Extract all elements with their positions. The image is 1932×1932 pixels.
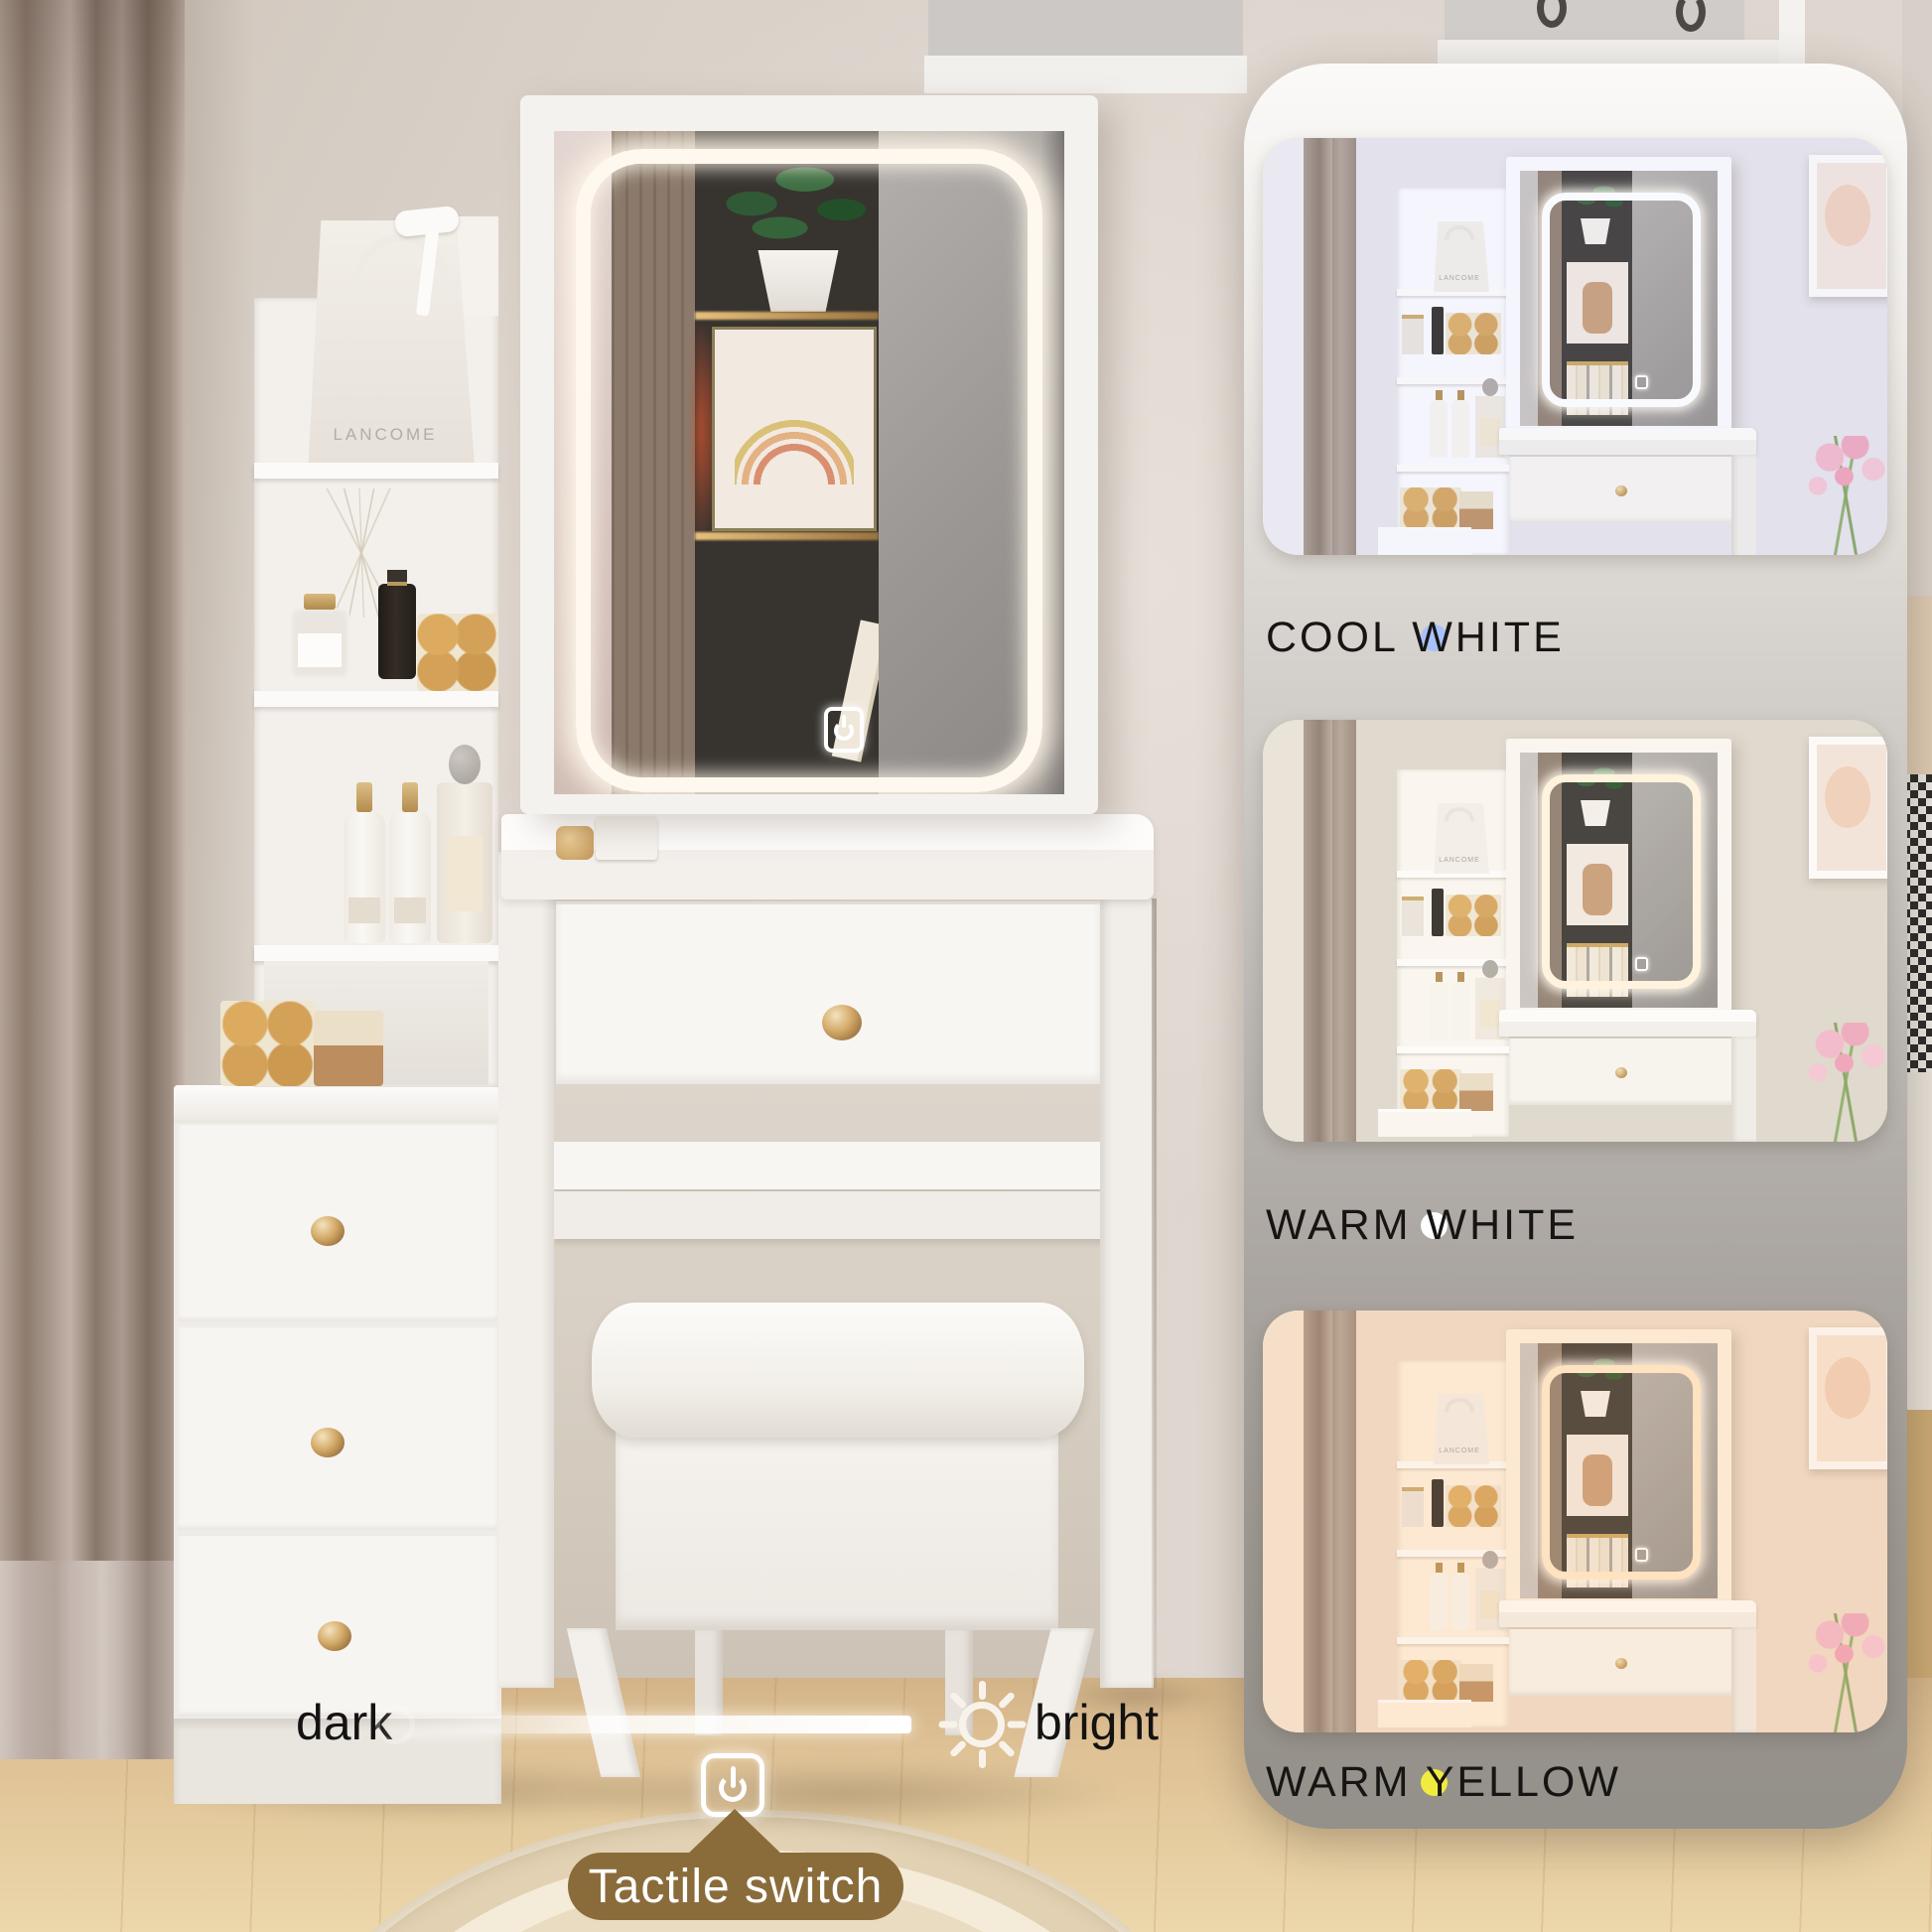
cabinet-knob-3 (318, 1621, 351, 1651)
mini-tulips (1806, 1613, 1885, 1732)
mini-led-mirror (1506, 157, 1731, 438)
tower-shelf-board (254, 463, 498, 479)
led-light-strip (576, 149, 1042, 792)
mini-touch-icon (1635, 957, 1648, 971)
tower-shelf-board (254, 691, 498, 707)
cabinet-knob-2 (311, 1428, 345, 1457)
cosmetic-boxes (417, 614, 498, 691)
mode-text: WARM WHITE (1266, 1201, 1579, 1250)
stool-rear-leg (945, 1628, 973, 1735)
desk-drawer (556, 901, 1100, 1084)
mode-label-warm-yellow: WARM YELLOW (1244, 1752, 1907, 1812)
mini-makeup-boxes (1400, 487, 1461, 529)
mini-drawer-knob (1615, 485, 1627, 496)
mini-led-mirror (1506, 1329, 1731, 1610)
lighting-mode-panel: LANCOME (1244, 64, 1907, 1829)
mini-makeup-boxes (1400, 1660, 1461, 1702)
cabinet-base (174, 1719, 501, 1804)
mini-led-mirror (1506, 739, 1731, 1020)
mini-tulips (1806, 1023, 1885, 1142)
mode-text: COOL WHITE (1266, 614, 1565, 662)
mini-touch-icon (1635, 375, 1648, 389)
product-screenshot: LANCOME (0, 0, 1932, 1932)
preview-cool-white: LANCOME (1263, 138, 1887, 555)
mini-picture-frame (1809, 737, 1887, 879)
preview-warm-white: LANCOME (1263, 720, 1887, 1142)
wardrobe-frame-band (1438, 40, 1779, 66)
desk-drawer-knob (822, 1005, 862, 1040)
desk-right-panel (1100, 898, 1154, 1688)
mini-touch-icon (1635, 1548, 1648, 1562)
mini-picture-frame (1809, 1327, 1887, 1469)
mini-picture-frame (1809, 155, 1887, 297)
desk-left-panel (498, 852, 554, 1688)
mirror-glass (554, 131, 1064, 794)
mini-desk-top (1499, 1600, 1756, 1627)
cabinet-drawer-2 (178, 1327, 497, 1530)
mirror-touch-sensor-icon (824, 707, 864, 753)
mini-curtain (1304, 720, 1356, 1142)
desk-cosmetic-box (596, 816, 657, 860)
desk-back-panel-lower (554, 1191, 1132, 1239)
mode-label-cool-white: COOL WHITE (1244, 608, 1907, 667)
wardrobe-mirror-top (928, 0, 1243, 60)
perfume-bottle (437, 782, 492, 943)
mini-led-strip (1542, 193, 1701, 407)
mini-tulips (1806, 436, 1885, 555)
cabinet-top (174, 1085, 501, 1125)
lotion-bottle (389, 812, 431, 943)
mini-curtain (1304, 138, 1356, 555)
led-mirror (520, 95, 1098, 814)
mini-led-strip (1542, 774, 1701, 989)
mini-makeup-boxes (1400, 1069, 1461, 1111)
curtain (0, 0, 185, 1759)
mode-text: WARM YELLOW (1266, 1758, 1621, 1807)
lotion-bottle (344, 812, 385, 943)
makeup-box-cluster (220, 1001, 316, 1086)
mini-desk-top (1499, 428, 1756, 455)
stool-base (616, 1430, 1058, 1630)
mode-label-warm-white: WARM WHITE (1244, 1195, 1907, 1255)
mini-drawer-knob (1615, 1658, 1627, 1669)
preview-warm-yellow: LANCOME (1263, 1311, 1887, 1732)
reed-diffuser (290, 608, 349, 679)
desk-edge-shadow (1152, 898, 1157, 1688)
tower-shelf-board (254, 945, 498, 961)
wardrobe-frame-edge (1779, 0, 1805, 66)
mini-curtain (1304, 1311, 1356, 1732)
mini-led-strip (1542, 1365, 1701, 1580)
mini-drawer-knob (1615, 1067, 1627, 1078)
desk-cosmetic-jar (556, 826, 594, 860)
makeup-cube-box (314, 1011, 383, 1086)
mini-desk-top (1499, 1010, 1756, 1036)
dropper-bottle (378, 584, 416, 679)
cabinet-knob-1 (311, 1216, 345, 1246)
stool-cushion (592, 1303, 1084, 1438)
stool-rear-leg (695, 1628, 723, 1735)
gift-bag-brand: LANCOME (296, 425, 475, 445)
desk-back-panel (554, 1142, 1132, 1189)
